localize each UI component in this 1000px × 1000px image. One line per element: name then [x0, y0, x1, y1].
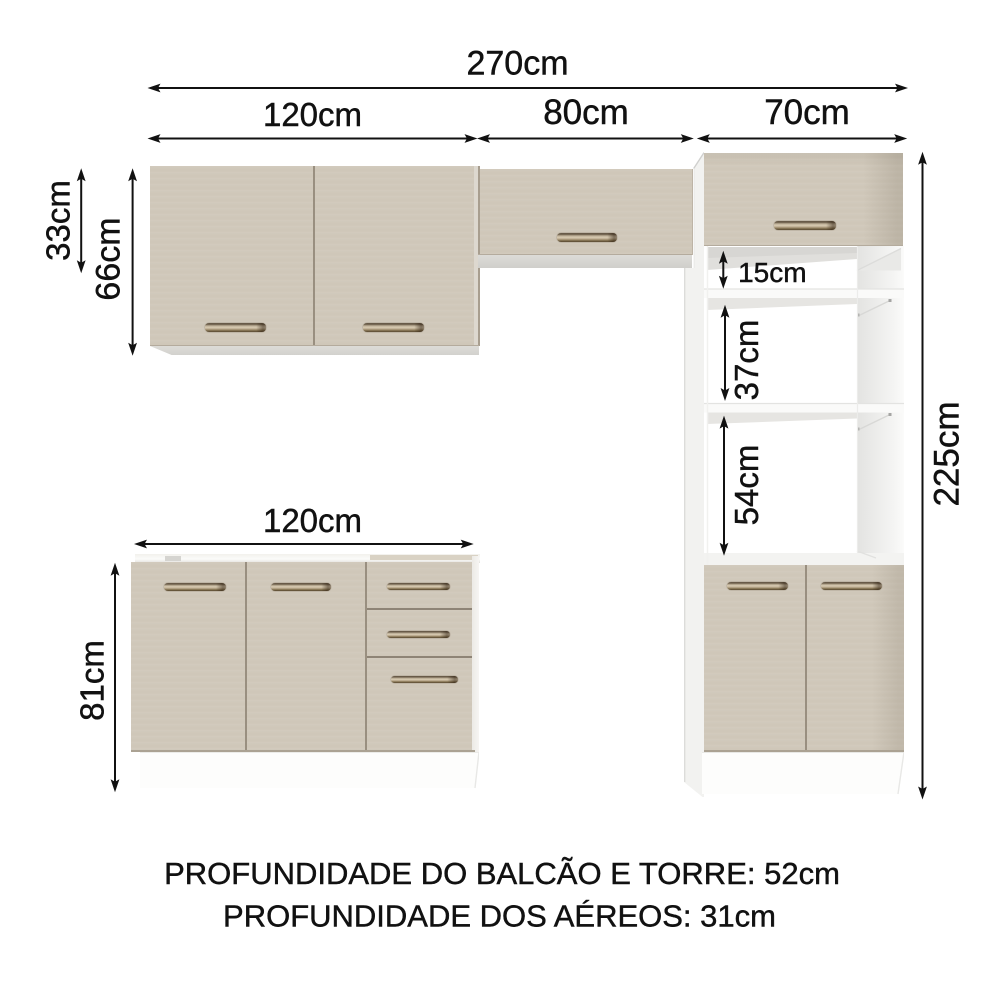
svg-text:PROFUNDIDADE DO BALCÃO E TORRE: PROFUNDIDADE DO BALCÃO E TORRE: 52cm — [164, 856, 840, 891]
svg-text:54cm: 54cm — [728, 445, 765, 526]
svg-text:70cm: 70cm — [764, 93, 850, 132]
svg-text:33cm: 33cm — [40, 180, 77, 261]
svg-text:80cm: 80cm — [543, 93, 629, 132]
svg-text:PROFUNDIDADE DOS AÉREOS: 31cm: PROFUNDIDADE DOS AÉREOS: 31cm — [223, 899, 776, 934]
svg-text:66cm: 66cm — [90, 217, 128, 300]
svg-text:225cm: 225cm — [928, 401, 967, 506]
svg-text:81cm: 81cm — [74, 640, 111, 721]
svg-text:270cm: 270cm — [466, 45, 568, 83]
svg-text:15cm: 15cm — [738, 257, 806, 288]
svg-text:120cm: 120cm — [263, 96, 362, 133]
svg-text:37cm: 37cm — [728, 320, 765, 401]
svg-text:120cm: 120cm — [263, 502, 362, 539]
